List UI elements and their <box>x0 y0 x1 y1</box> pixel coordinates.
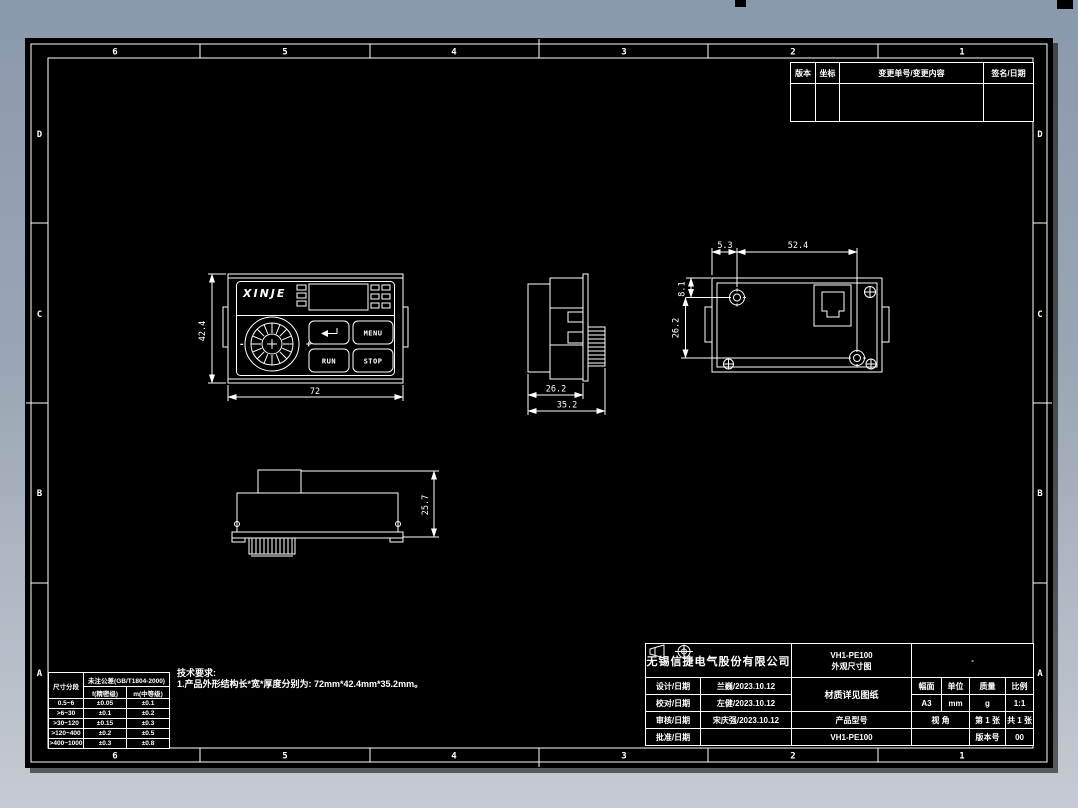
sign-value-check: 左健/2023.10.12 <box>701 695 792 712</box>
tolerance-cell: ±0.5 <box>127 729 170 739</box>
screw-boss-bottom-right <box>866 359 877 370</box>
side-view: 26.2 35.2 <box>528 274 605 415</box>
tolerance-subheader-medium: m(中等级) <box>127 687 170 699</box>
tech-req-item: 1.产品外形结构长*宽*厚度分别为: 72mm*42.4mm*35.2mm。 <box>177 679 423 690</box>
zone-row-label: D <box>37 130 43 140</box>
zone-col-label: 5 <box>282 752 287 762</box>
dim-text: 5.3 <box>717 241 732 251</box>
panel-clip-left <box>223 307 228 347</box>
panel-clip-left <box>705 307 712 342</box>
material-note: 材质详见图纸 <box>792 678 912 712</box>
tech-req-title: 技术要求: <box>177 668 423 679</box>
spec-value-scale: 1:1 <box>1006 695 1034 712</box>
title-block: 无锡信捷电气股份有限公司 VH1-PE100 外观尺寸图 - 设计/日期 兰巍/… <box>645 643 1034 746</box>
zone-col-label: 1 <box>959 752 964 762</box>
screw-boss-top-right <box>864 287 876 298</box>
rj-connector-port <box>814 285 851 326</box>
brand-logo: XINJE <box>242 287 286 300</box>
knob-min-label: - <box>239 340 244 350</box>
zone-row-label: C <box>37 310 42 320</box>
menu-button-graphic: MENU <box>353 321 393 344</box>
revision-cell-empty <box>840 84 984 122</box>
tolerance-table: 尺寸分段 未注公差(GB/T1804-2000) f(精密级) m(中等级) 0… <box>48 672 170 749</box>
projection-symbol-cell <box>912 729 970 746</box>
sign-value-approve <box>701 729 792 746</box>
revision-header-change: 变更单号/变更内容 <box>840 63 984 84</box>
tolerance-cell: ±0.05 <box>84 699 127 709</box>
drawing-sheet: 6 5 4 3 2 1 6 5 4 3 2 1 D C B A D C B A … <box>25 38 1053 768</box>
zone-col-label: 4 <box>451 752 457 762</box>
dimension-front-height: 42.4 <box>198 274 226 383</box>
version-value: 00 <box>1006 729 1034 746</box>
screw-boss-bottom-left <box>723 359 734 370</box>
status-led-block-right <box>371 285 390 308</box>
screw-boss-bottom <box>848 349 866 367</box>
tolerance-subheader-fine: f(精密级) <box>84 687 127 699</box>
return-arrow-icon <box>321 328 337 337</box>
technical-requirements: 技术要求: 1.产品外形结构长*宽*厚度分别为: 72mm*42.4mm*35.… <box>177 668 423 690</box>
dim-text: 52.4 <box>788 241 808 251</box>
dim-text: 25.7 <box>421 495 431 515</box>
tolerance-cell: >400~1000 <box>49 739 84 749</box>
zone-col-label: 3 <box>621 48 626 58</box>
tolerance-cell: >30~120 <box>49 719 84 729</box>
spec-header-size: 幅面 <box>912 678 942 695</box>
zone-row-label: A <box>37 669 43 679</box>
zone-col-label: 3 <box>621 752 626 762</box>
spec-value-unit: mm <box>942 695 970 712</box>
revision-header-version: 版本 <box>791 63 816 84</box>
dim-text: 72 <box>310 387 320 397</box>
dimension-side-depth-total: 35.2 <box>528 368 605 415</box>
tolerance-cell: >120~400 <box>49 729 84 739</box>
tolerance-cell: ±0.3 <box>127 719 170 729</box>
drawing-title-line1: VH1-PE100 <box>792 650 911 661</box>
tolerance-cell: >6~30 <box>49 709 84 719</box>
zone-col-label: 6 <box>112 48 117 58</box>
rotary-knob <box>245 317 299 371</box>
stop-button-graphic: STOP <box>353 349 393 372</box>
sign-label-design: 设计/日期 <box>646 678 701 695</box>
panel-clip-right <box>882 307 889 342</box>
title-block-dash: - <box>912 644 1034 678</box>
product-model: VH1-PE100 <box>792 729 912 746</box>
zone-row-label: C <box>1037 310 1042 320</box>
front-view: XINJE - + <box>198 274 408 401</box>
zone-row-label: A <box>1037 669 1043 679</box>
run-button-label: RUN <box>322 358 336 366</box>
dimension-side-depth-body: 26.2 <box>528 374 583 399</box>
sign-label-check: 校对/日期 <box>646 695 701 712</box>
bezel-hump <box>258 470 301 493</box>
revision-cell-empty <box>984 84 1034 122</box>
tolerance-cell: ±0.1 <box>84 709 127 719</box>
spec-header-scale: 比例 <box>1006 678 1034 695</box>
tolerance-cell: ±0.2 <box>84 729 127 739</box>
sign-label-approve: 批准/日期 <box>646 729 701 746</box>
display-screen <box>309 284 368 310</box>
revision-header-zone: 坐标 <box>816 63 840 84</box>
drawing-title: VH1-PE100 外观尺寸图 <box>792 644 912 678</box>
menu-button-label: MENU <box>364 330 383 338</box>
spec-header-weight: 质量 <box>970 678 1006 695</box>
dim-text: 35.2 <box>557 401 577 411</box>
terminal-connector-bottom <box>249 538 295 556</box>
zone-row-label: B <box>37 489 43 499</box>
dimension-back-edge-offset: 5.3 <box>712 241 737 287</box>
tolerance-cell: ±0.15 <box>84 719 127 729</box>
zone-col-label: 1 <box>959 48 964 58</box>
zone-col-label: 2 <box>790 752 795 762</box>
dimension-back-top-offset: 8.1 <box>678 278 730 298</box>
dimension-back-screw-span: 52.4 <box>737 241 857 350</box>
revision-cell-empty <box>791 84 816 122</box>
tolerance-header-standard: 未注公差(GB/T1804-2000) <box>84 673 170 687</box>
tolerance-cell: ±0.1 <box>127 699 170 709</box>
tolerance-cell: ±0.3 <box>84 739 127 749</box>
sheet-total: 共 1 张 <box>1006 712 1034 729</box>
revision-cell-empty <box>816 84 840 122</box>
status-led-block-left <box>297 285 306 306</box>
zone-row-label: D <box>1037 130 1043 140</box>
window-artifact-mark <box>735 0 746 7</box>
dim-text: 8.1 <box>678 281 688 296</box>
revision-table: 版本 坐标 变更单号/变更内容 签名/日期 <box>790 62 1034 122</box>
drawing-title-line2: 外观尺寸图 <box>792 661 911 672</box>
tolerance-cell: ±0.8 <box>127 739 170 749</box>
zone-col-label: 6 <box>112 752 117 762</box>
bottom-view: 25.7 <box>232 470 439 556</box>
stop-button-label: STOP <box>364 358 383 366</box>
zone-col-label: 4 <box>451 48 457 58</box>
back-view: 5.3 52.4 8.1 26.2 <box>672 241 890 372</box>
view-angle-label: 视 角 <box>912 712 970 729</box>
knob-max-label: + <box>306 340 312 350</box>
zone-col-label: 2 <box>790 48 795 58</box>
screw-boss-top-left <box>728 289 746 307</box>
back-button-graphic <box>309 321 349 344</box>
product-model-label: 产品型号 <box>792 712 912 729</box>
zone-row-label: B <box>1037 489 1043 499</box>
window-artifact-mark <box>1057 0 1073 9</box>
sign-value-audit: 宋庆强/2023.10.12 <box>701 712 792 729</box>
sign-label-audit: 审核/日期 <box>646 712 701 729</box>
sign-value-design: 兰巍/2023.10.12 <box>701 678 792 695</box>
tolerance-cell: ±0.2 <box>127 709 170 719</box>
dim-text: 42.4 <box>198 321 208 341</box>
tolerance-cell: 0.5~6 <box>49 699 84 709</box>
panel-clip-right <box>403 307 408 347</box>
spec-header-unit: 单位 <box>942 678 970 695</box>
dim-text: 26.2 <box>546 385 566 395</box>
tolerance-header-range: 尺寸分段 <box>49 673 84 699</box>
dimension-bottom-height: 25.7 <box>301 471 439 537</box>
revision-header-sign: 签名/日期 <box>984 63 1034 84</box>
sheet-number: 第 1 张 <box>970 712 1006 729</box>
version-label: 版本号 <box>970 729 1006 746</box>
spec-value-size: A3 <box>912 695 942 712</box>
spec-value-weight: g <box>970 695 1006 712</box>
run-button-graphic: RUN <box>309 349 349 372</box>
terminal-connector-side <box>588 327 605 366</box>
dim-text: 26.2 <box>672 318 682 338</box>
dimension-front-width: 72 <box>228 385 403 401</box>
zone-col-label: 5 <box>282 48 287 58</box>
